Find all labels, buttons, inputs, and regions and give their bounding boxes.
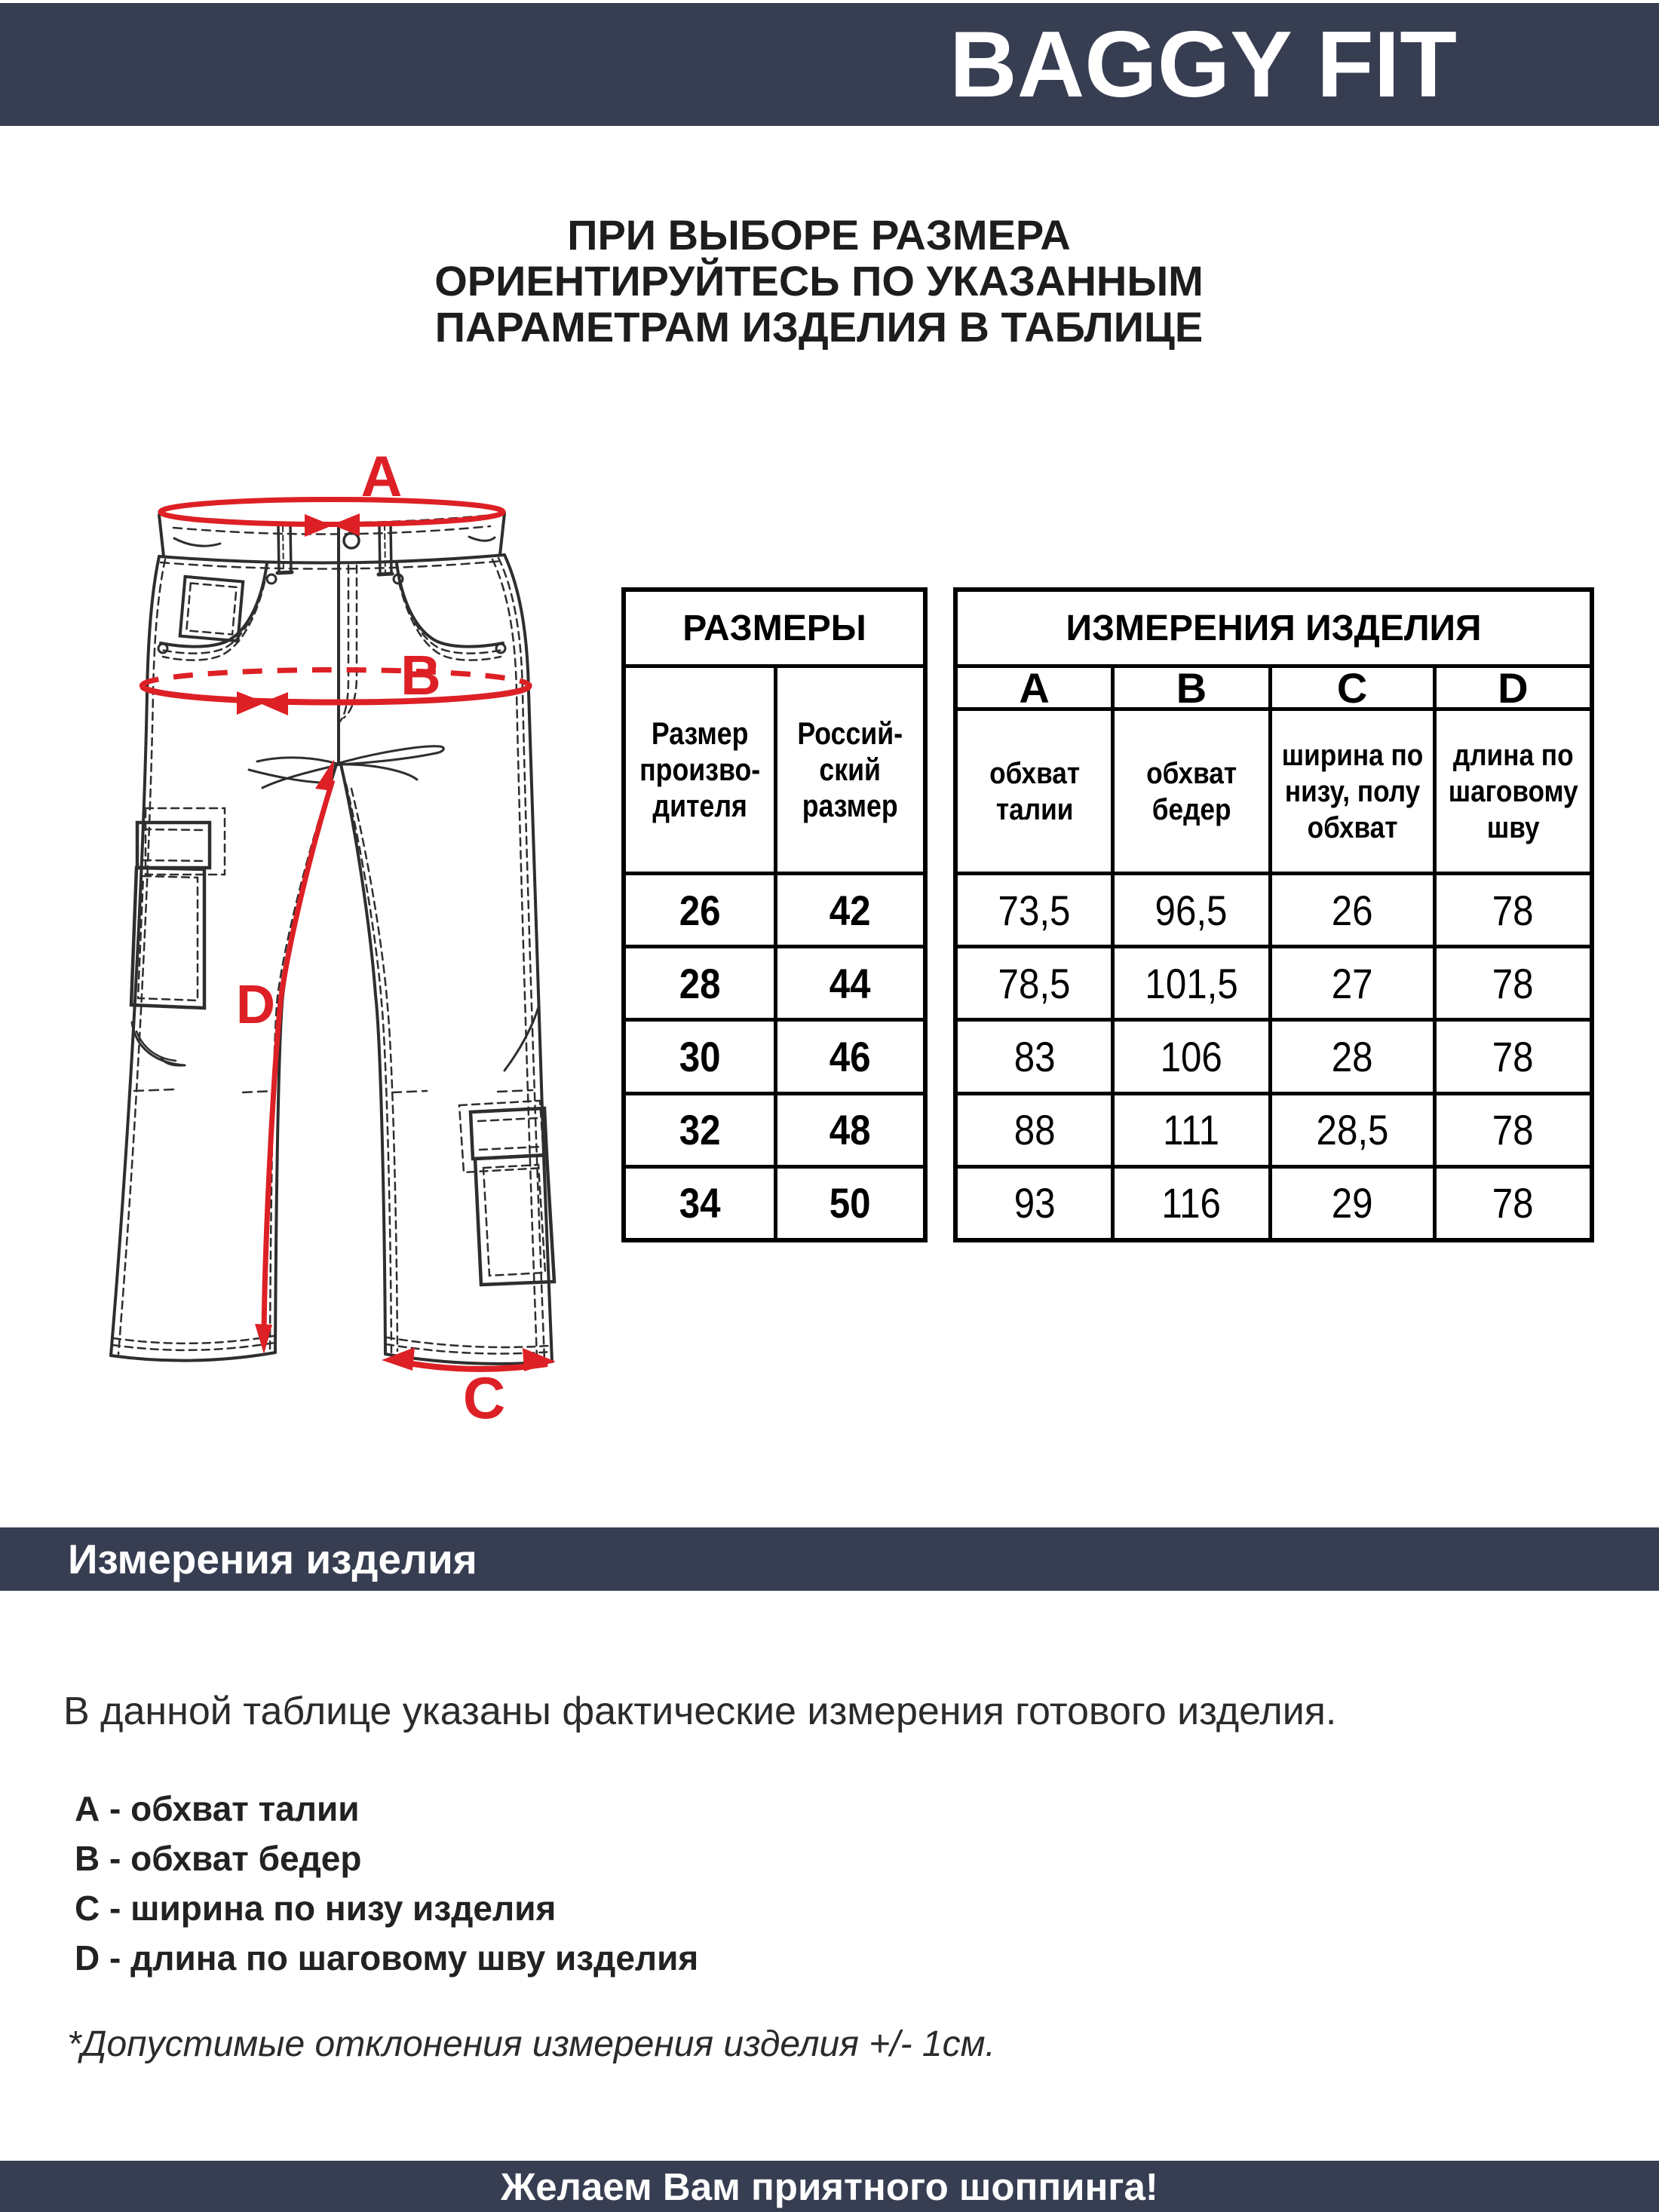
svg-text:A: A [361,445,403,509]
svg-text:B: B [400,644,440,706]
svg-text:C: C [463,1365,505,1431]
svg-text:D: D [236,975,275,1035]
